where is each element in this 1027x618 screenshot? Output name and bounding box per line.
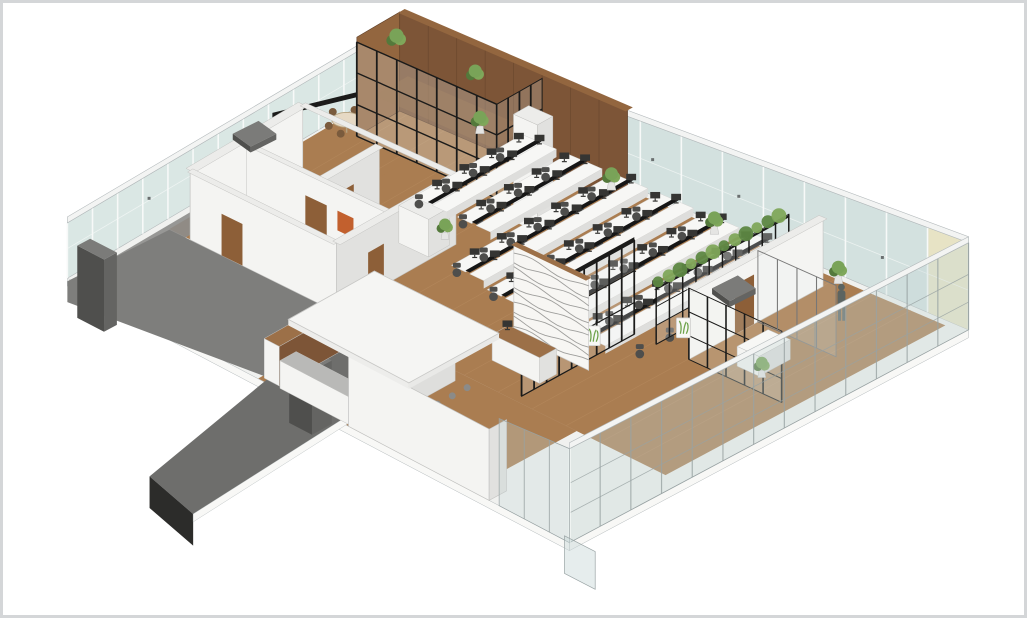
- office-floorplan-3d-view: [0, 0, 1027, 618]
- floorplan-render-svg: [3, 3, 1024, 615]
